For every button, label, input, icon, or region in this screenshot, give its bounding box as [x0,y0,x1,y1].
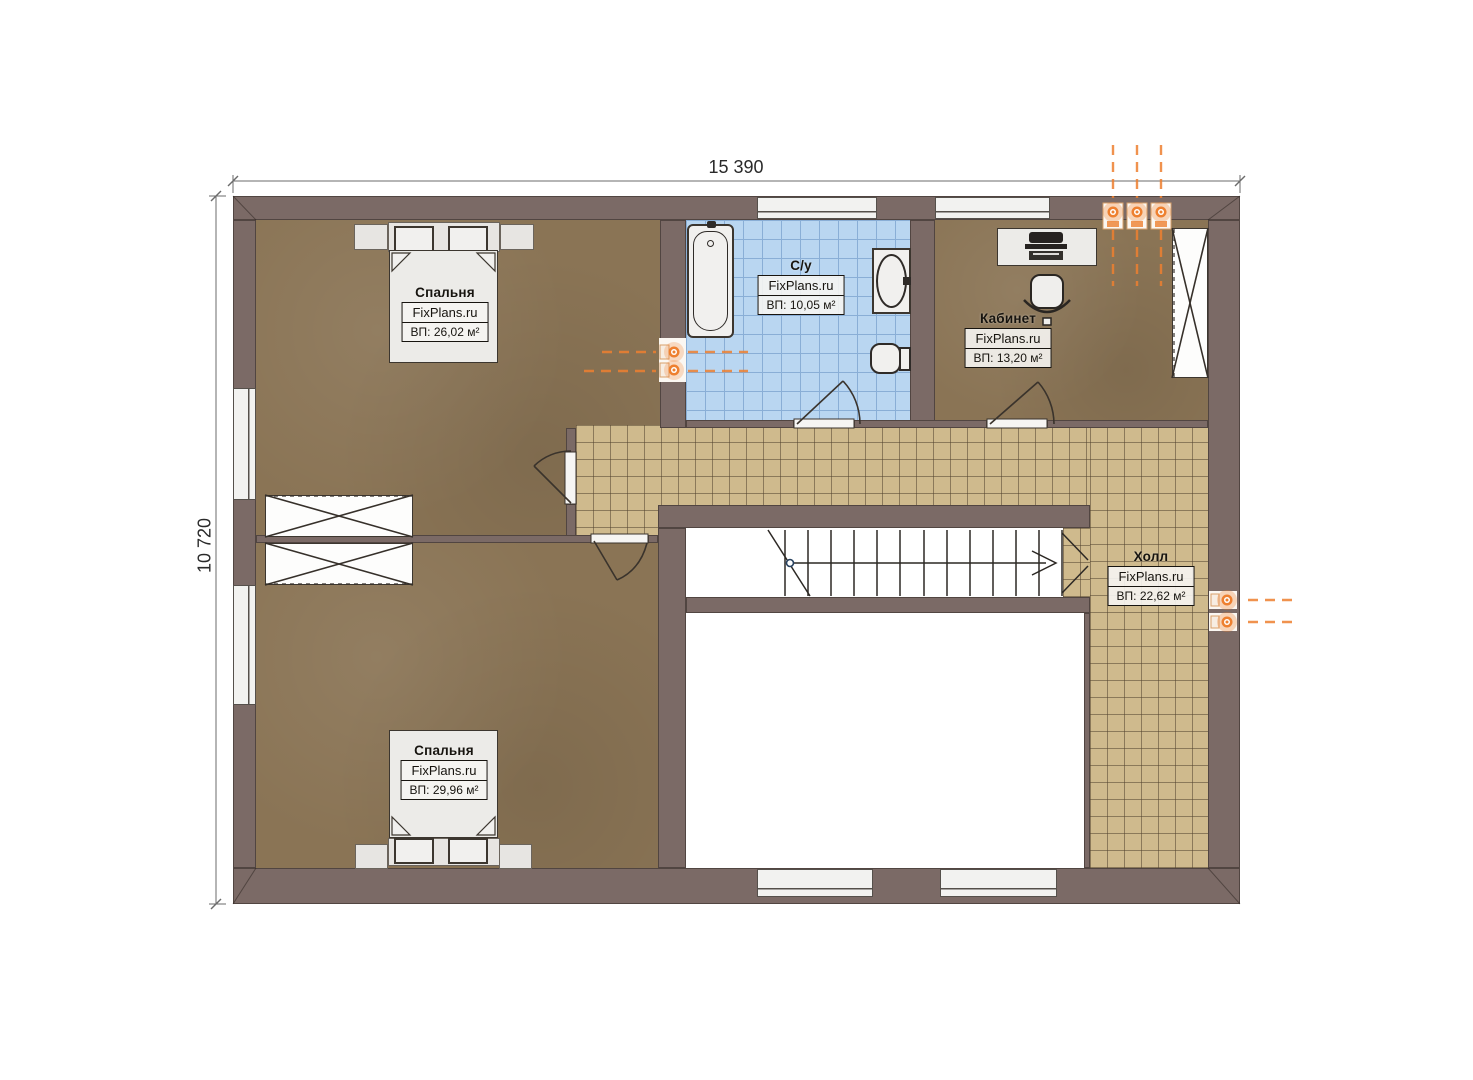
room-name: Спальня [415,285,475,300]
dimension-width-label: 15 390 [636,157,836,178]
room-area-text: ВП: 29,96 м² [402,781,487,799]
window-left-2 [233,585,256,705]
toilet-bowl [870,343,901,374]
room-label-bathroom: С/у FixPlans.ru ВП: 10,05 м² [758,258,845,315]
wall-corridor-top-seg1 [686,420,794,428]
room-label-box: FixPlans.ru ВП: 26,02 м² [402,302,489,342]
floor-plan-canvas: 15 390 10 720 Спальня FixPlans.ru ВП: 26… [0,0,1473,1080]
wardrobe-bedroom2 [265,543,413,585]
watermark-text: FixPlans.ru [403,303,488,323]
wall-right [1208,220,1240,868]
room-area-text: ВП: 13,20 м² [966,349,1051,367]
room-area-text: ВП: 26,02 м² [403,323,488,341]
watermark-text: FixPlans.ru [1109,567,1194,587]
dimension-height-label: 10 720 [195,491,216,601]
wall-top [233,196,1240,220]
bathtub-drain [707,240,714,247]
wall-corridor-top-seg3 [1047,420,1208,428]
wall-bedroom-divider-seg2 [648,535,658,543]
corridor-floor-left [576,425,660,535]
window-bottom-2 [940,869,1057,897]
wall-bottom [233,868,1240,904]
wall-corridor-left-seg2 [566,504,576,537]
room-label-box: FixPlans.ru ВП: 22,62 м² [1108,566,1195,606]
hall-floor [1090,425,1208,868]
bed2-pillow-right [448,838,488,864]
room-name: Холл [1134,549,1169,564]
office-desk [997,228,1097,266]
wall-stairwell-top [658,505,1090,528]
stairwell-background [686,528,1063,597]
stair-landing [1063,528,1090,597]
wall-under-stairs [686,597,1090,613]
room-name: С/у [790,258,812,273]
wall-bathroom-right [910,220,935,428]
bed1-nightstand-right [500,224,534,250]
wall-bathroom-left [660,220,686,428]
wall-void-right [1084,613,1090,868]
bed2-nightstand-right [499,844,532,869]
room-name: Спальня [414,743,474,758]
room-label-hall: Холл FixPlans.ru ВП: 22,62 м² [1108,549,1195,606]
window-top-office [935,197,1050,219]
room-label-bedroom-1: Спальня FixPlans.ru ВП: 26,02 м² [402,285,489,342]
wardrobe-office [1172,228,1208,378]
room-label-office: Кабинет FixPlans.ru ВП: 13,20 м² [965,311,1052,368]
watermark-text: FixPlans.ru [759,276,844,296]
room-name: Кабинет [980,311,1036,326]
toilet-tank [899,347,911,371]
room-label-bedroom-2: Спальня FixPlans.ru ВП: 29,96 м² [401,743,488,800]
room-label-box: FixPlans.ru ВП: 29,96 м² [401,760,488,800]
wall-left [233,220,256,868]
wardrobe-bedroom1 [265,495,413,537]
bed1-nightstand-left [354,224,388,250]
sink-tap [903,277,911,285]
room-label-box: FixPlans.ru ВП: 10,05 м² [758,275,845,315]
room-area-text: ВП: 22,62 м² [1109,587,1194,605]
window-left-1 [233,388,256,500]
room-label-box: FixPlans.ru ВП: 13,20 м² [965,328,1052,368]
room-area-text: ВП: 10,05 м² [759,296,844,314]
bed2-pillow-left [394,838,434,864]
void-opening [686,613,1085,868]
wall-corridor-top-seg2 [854,420,987,428]
bathtub-tap [707,221,716,228]
watermark-text: FixPlans.ru [402,761,487,781]
watermark-text: FixPlans.ru [966,329,1051,349]
wall-corridor-left-seg1 [566,428,576,453]
wall-stairwell-left [658,528,686,868]
bed2-nightstand-left [355,844,388,869]
window-bottom-1 [757,869,873,897]
window-top-bathroom [757,197,877,219]
